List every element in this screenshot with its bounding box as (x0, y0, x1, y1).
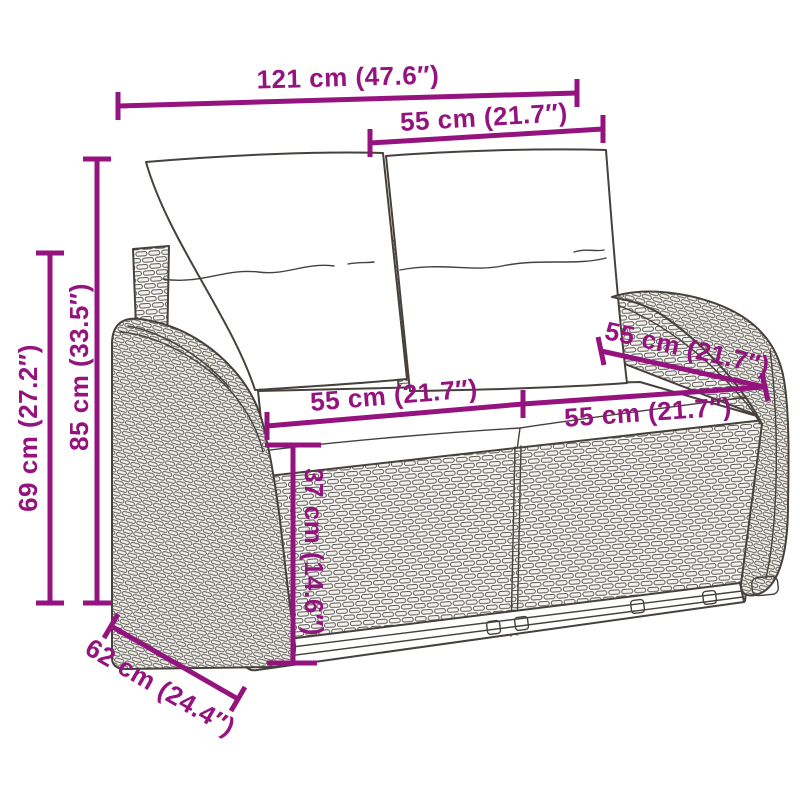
dim-label-armrest-height: 69 cm (27.2″) (13, 344, 43, 512)
dim-label-overall-height: 85 cm (33.5″) (64, 283, 94, 451)
cushion-back-right (386, 149, 627, 391)
product-dimension-diagram: 121 cm (47.6″) 55 cm (21.7″) 85 cm (33.5… (0, 0, 800, 800)
dim-label-base-height: 37 cm (14.6″) (299, 468, 329, 636)
dim-backrest-width: 55 cm (21.7″) (370, 97, 603, 157)
dim-armrest-height: 69 cm (27.2″) (13, 253, 64, 603)
bench-dimension-drawing: 121 cm (47.6″) 55 cm (21.7″) 85 cm (33.5… (0, 0, 800, 800)
dim-overall-height: 85 cm (33.5″) (64, 159, 111, 603)
dim-label-total-width: 121 cm (47.6″) (256, 59, 440, 94)
